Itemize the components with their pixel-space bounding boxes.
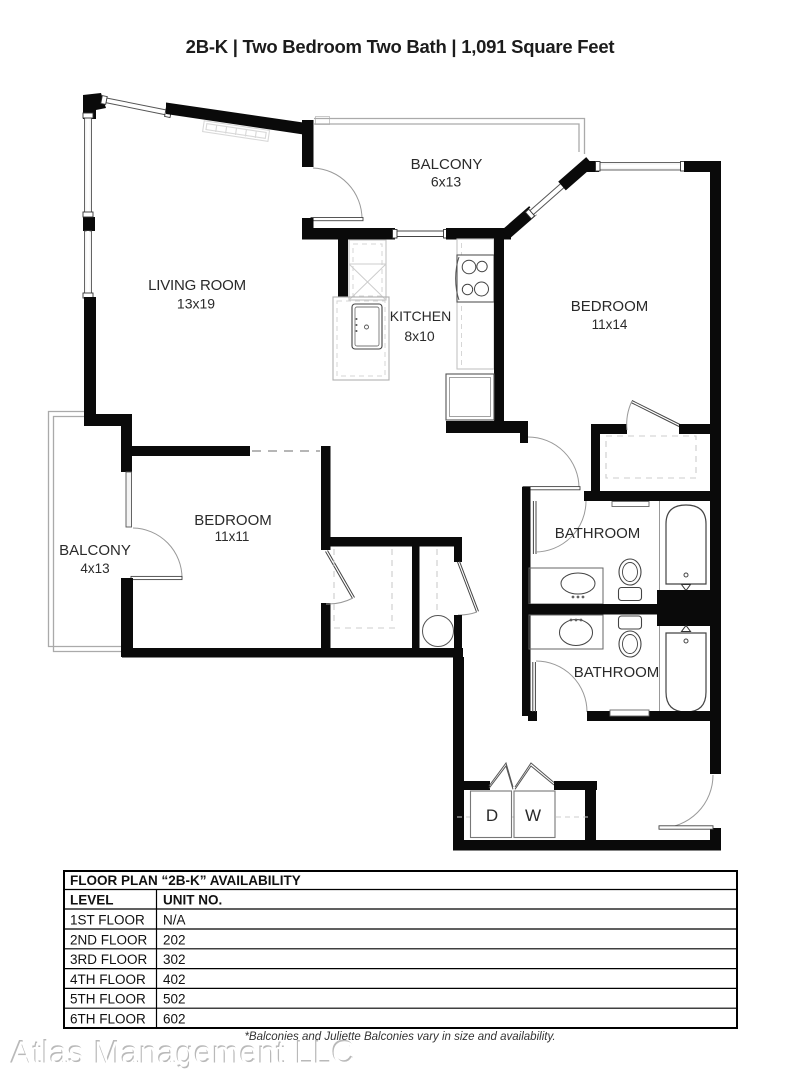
svg-text:6TH FLOOR: 6TH FLOOR [70, 1012, 146, 1027]
svg-text:N/A: N/A [163, 913, 186, 928]
svg-text:FLOOR PLAN “2B-K” AVAILABILITY: FLOOR PLAN “2B-K” AVAILABILITY [70, 873, 301, 888]
svg-text:4TH FLOOR: 4TH FLOOR [70, 972, 146, 987]
svg-text:KITCHEN: KITCHEN [390, 308, 451, 324]
svg-text:BATHROOM: BATHROOM [574, 664, 660, 681]
svg-text:1ST FLOOR: 1ST FLOOR [70, 913, 145, 928]
svg-text:6x13: 6x13 [431, 174, 462, 190]
svg-text:LIVING ROOM: LIVING ROOM [148, 277, 246, 294]
svg-text:602: 602 [163, 1012, 186, 1027]
svg-text:D: D [486, 806, 498, 825]
svg-text:BEDROOM: BEDROOM [571, 298, 649, 315]
svg-text:2ND FLOOR: 2ND FLOOR [70, 932, 148, 947]
svg-text:*Balconies and Juliette Balcon: *Balconies and Juliette Balconies vary i… [244, 1031, 555, 1043]
svg-text:BALCONY: BALCONY [411, 156, 483, 173]
svg-text:BATHROOM: BATHROOM [555, 525, 641, 542]
svg-text:402: 402 [163, 972, 186, 987]
svg-text:UNIT NO.: UNIT NO. [163, 893, 222, 908]
svg-text:LEVEL: LEVEL [70, 893, 114, 908]
svg-text:2B-K | Two Bedroom Two Bath |: 2B-K | Two Bedroom Two Bath | 1,091 Squa… [186, 36, 615, 57]
svg-text:3RD FLOOR: 3RD FLOOR [70, 952, 148, 967]
svg-text:BALCONY: BALCONY [59, 542, 131, 559]
svg-text:BEDROOM: BEDROOM [194, 512, 272, 529]
svg-text:302: 302 [163, 952, 186, 967]
svg-text:4x13: 4x13 [80, 561, 109, 576]
svg-text:5TH FLOOR: 5TH FLOOR [70, 992, 146, 1007]
svg-text:202: 202 [163, 932, 186, 947]
svg-text:W: W [525, 806, 541, 825]
svg-text:8x10: 8x10 [404, 328, 435, 344]
svg-text:11x14: 11x14 [592, 317, 628, 332]
svg-text:11x11: 11x11 [215, 529, 250, 544]
svg-text:13x19: 13x19 [177, 296, 215, 312]
svg-text:502: 502 [163, 992, 186, 1007]
